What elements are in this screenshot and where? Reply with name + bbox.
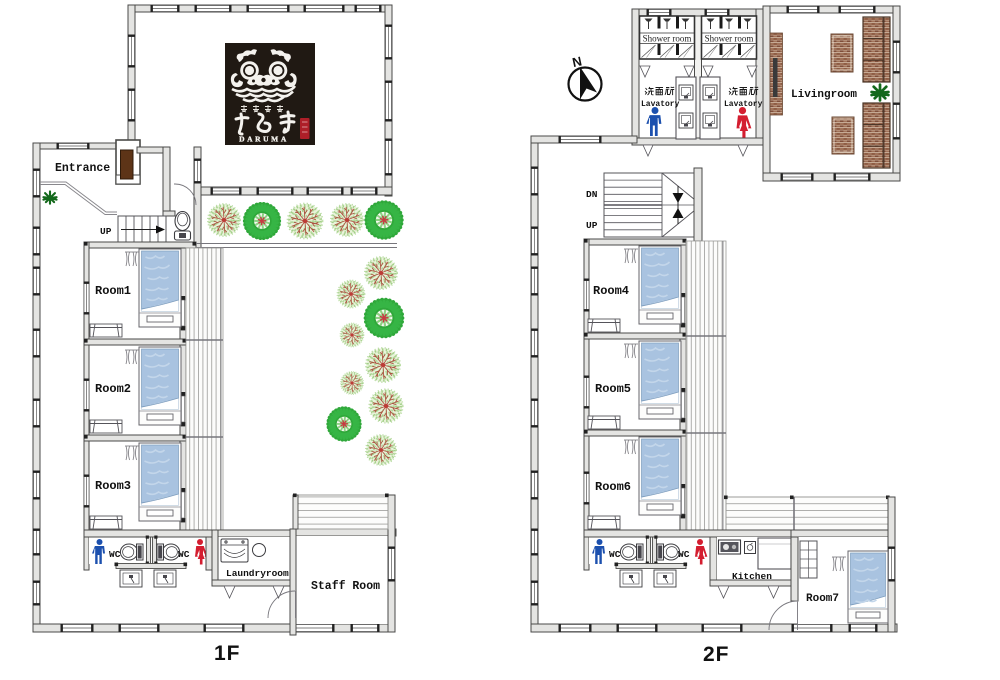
svg-text:Staff Room: Staff Room — [311, 580, 380, 593]
svg-text:Room1: Room1 — [95, 284, 131, 298]
svg-text:2F: 2F — [703, 643, 730, 666]
svg-text:Lavatory: Lavatory — [641, 100, 680, 109]
svg-text:Entrance: Entrance — [55, 162, 110, 175]
svg-text:Shower room: Shower room — [705, 34, 754, 44]
svg-text:Room3: Room3 — [95, 479, 131, 493]
svg-text:WC: WC — [109, 549, 121, 560]
svg-text:Livingroom: Livingroom — [791, 89, 857, 101]
svg-text:1F: 1F — [214, 642, 241, 665]
svg-text:WC: WC — [178, 549, 190, 560]
svg-text:WC: WC — [678, 549, 690, 560]
svg-text:WC: WC — [609, 549, 621, 560]
svg-text:Laundryroom: Laundryroom — [226, 568, 289, 579]
svg-text:DARUMA: DARUMA — [239, 135, 289, 144]
svg-text:Room6: Room6 — [595, 480, 631, 494]
svg-text:UP: UP — [586, 220, 598, 231]
svg-text:Shower room: Shower room — [643, 34, 692, 44]
svg-text:UP: UP — [100, 226, 112, 237]
svg-text:DN: DN — [586, 189, 598, 200]
svg-text:Kitchen: Kitchen — [732, 571, 772, 582]
svg-text:Room7: Room7 — [806, 593, 839, 605]
svg-text:Room2: Room2 — [95, 382, 131, 396]
svg-text:Room5: Room5 — [595, 382, 631, 396]
svg-text:Room4: Room4 — [593, 284, 629, 298]
